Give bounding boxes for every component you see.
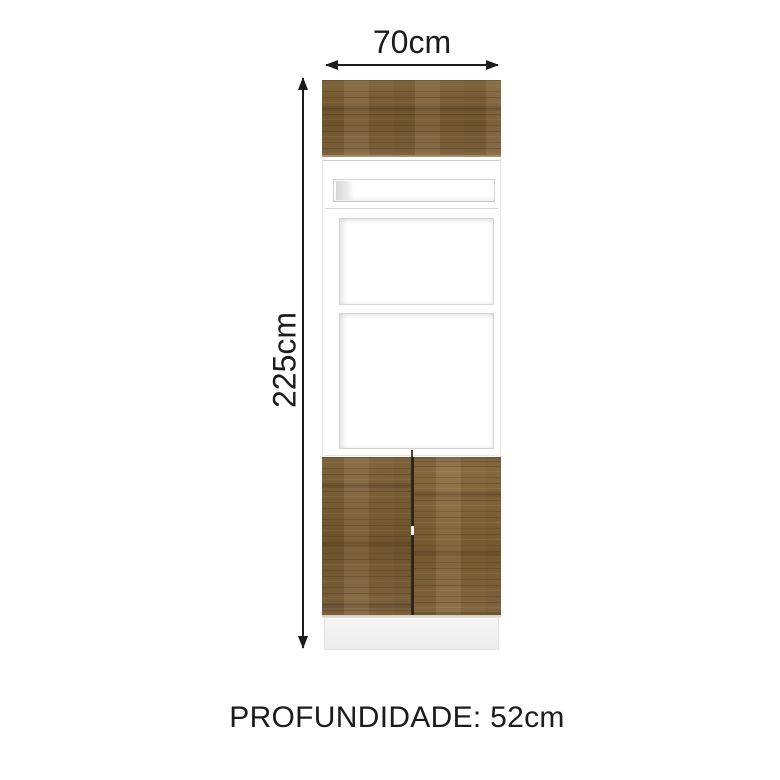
shelf-edge-line: [325, 208, 498, 209]
door-gap: [411, 457, 414, 615]
bottom-right-door: [414, 457, 501, 615]
door-gap-tick: [411, 450, 413, 457]
door-gap-notch: [411, 526, 414, 535]
carcass-top-edge-line: [323, 160, 500, 161]
height-dimension-arrow: [302, 78, 304, 648]
depth-label: PROFUNDIDADE: 52cm: [229, 701, 564, 735]
upper-door: [322, 80, 501, 157]
lower-open-compartment: [339, 313, 494, 449]
arrow-left-icon: [325, 60, 338, 70]
height-dimension-label: 225cm: [267, 312, 304, 408]
width-dimension-label: 70cm: [326, 24, 498, 61]
width-dimension-arrow: [326, 64, 498, 66]
arrow-up-icon: [298, 77, 308, 90]
product-dimension-diagram: 70cm 225cm: [0, 0, 780, 780]
cabinet: [322, 80, 501, 650]
upper-open-compartment: [339, 218, 494, 305]
bottom-left-door: [322, 457, 411, 615]
vent-slot-shadow: [336, 181, 354, 200]
vent-slot: [333, 179, 495, 202]
bottom-doors: [322, 457, 501, 615]
plinth: [324, 618, 499, 650]
arrow-down-icon: [298, 636, 308, 649]
cabinet-carcass: [322, 157, 501, 457]
arrow-right-icon: [486, 60, 499, 70]
